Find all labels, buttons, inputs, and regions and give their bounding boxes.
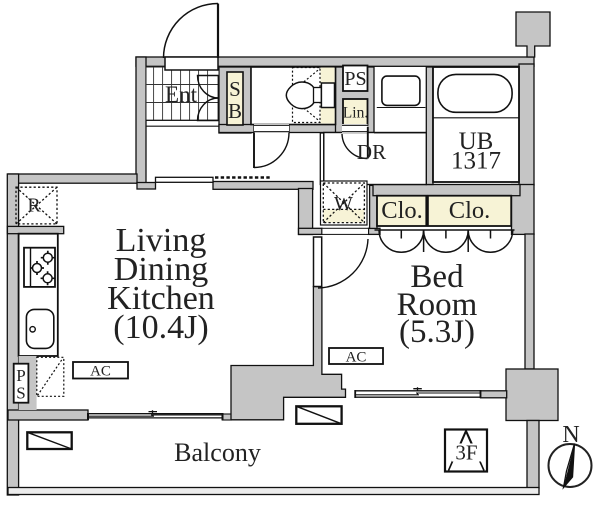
svg-text:N: N xyxy=(562,422,579,448)
svg-text:(10.4J): (10.4J) xyxy=(113,309,208,346)
svg-text:Balcony: Balcony xyxy=(174,438,261,467)
svg-text:Clo.: Clo. xyxy=(449,197,491,224)
svg-text:Clo.: Clo. xyxy=(381,197,423,224)
svg-text:PS: PS xyxy=(344,68,366,90)
svg-text:3F: 3F xyxy=(455,441,477,465)
svg-text:S: S xyxy=(16,384,25,403)
svg-text:W: W xyxy=(334,193,353,215)
svg-text:1317: 1317 xyxy=(451,148,501,175)
svg-text:B: B xyxy=(228,99,242,123)
svg-text:AC: AC xyxy=(90,364,111,380)
svg-text:DR: DR xyxy=(357,140,386,164)
svg-text:R: R xyxy=(27,195,41,217)
svg-text:AC: AC xyxy=(346,350,367,366)
svg-text:Ent: Ent xyxy=(165,82,198,107)
svg-text:Lin.: Lin. xyxy=(343,105,368,122)
svg-text:(5.3J): (5.3J) xyxy=(399,314,475,350)
svg-text:S: S xyxy=(229,77,241,101)
svg-text:P: P xyxy=(16,366,25,385)
